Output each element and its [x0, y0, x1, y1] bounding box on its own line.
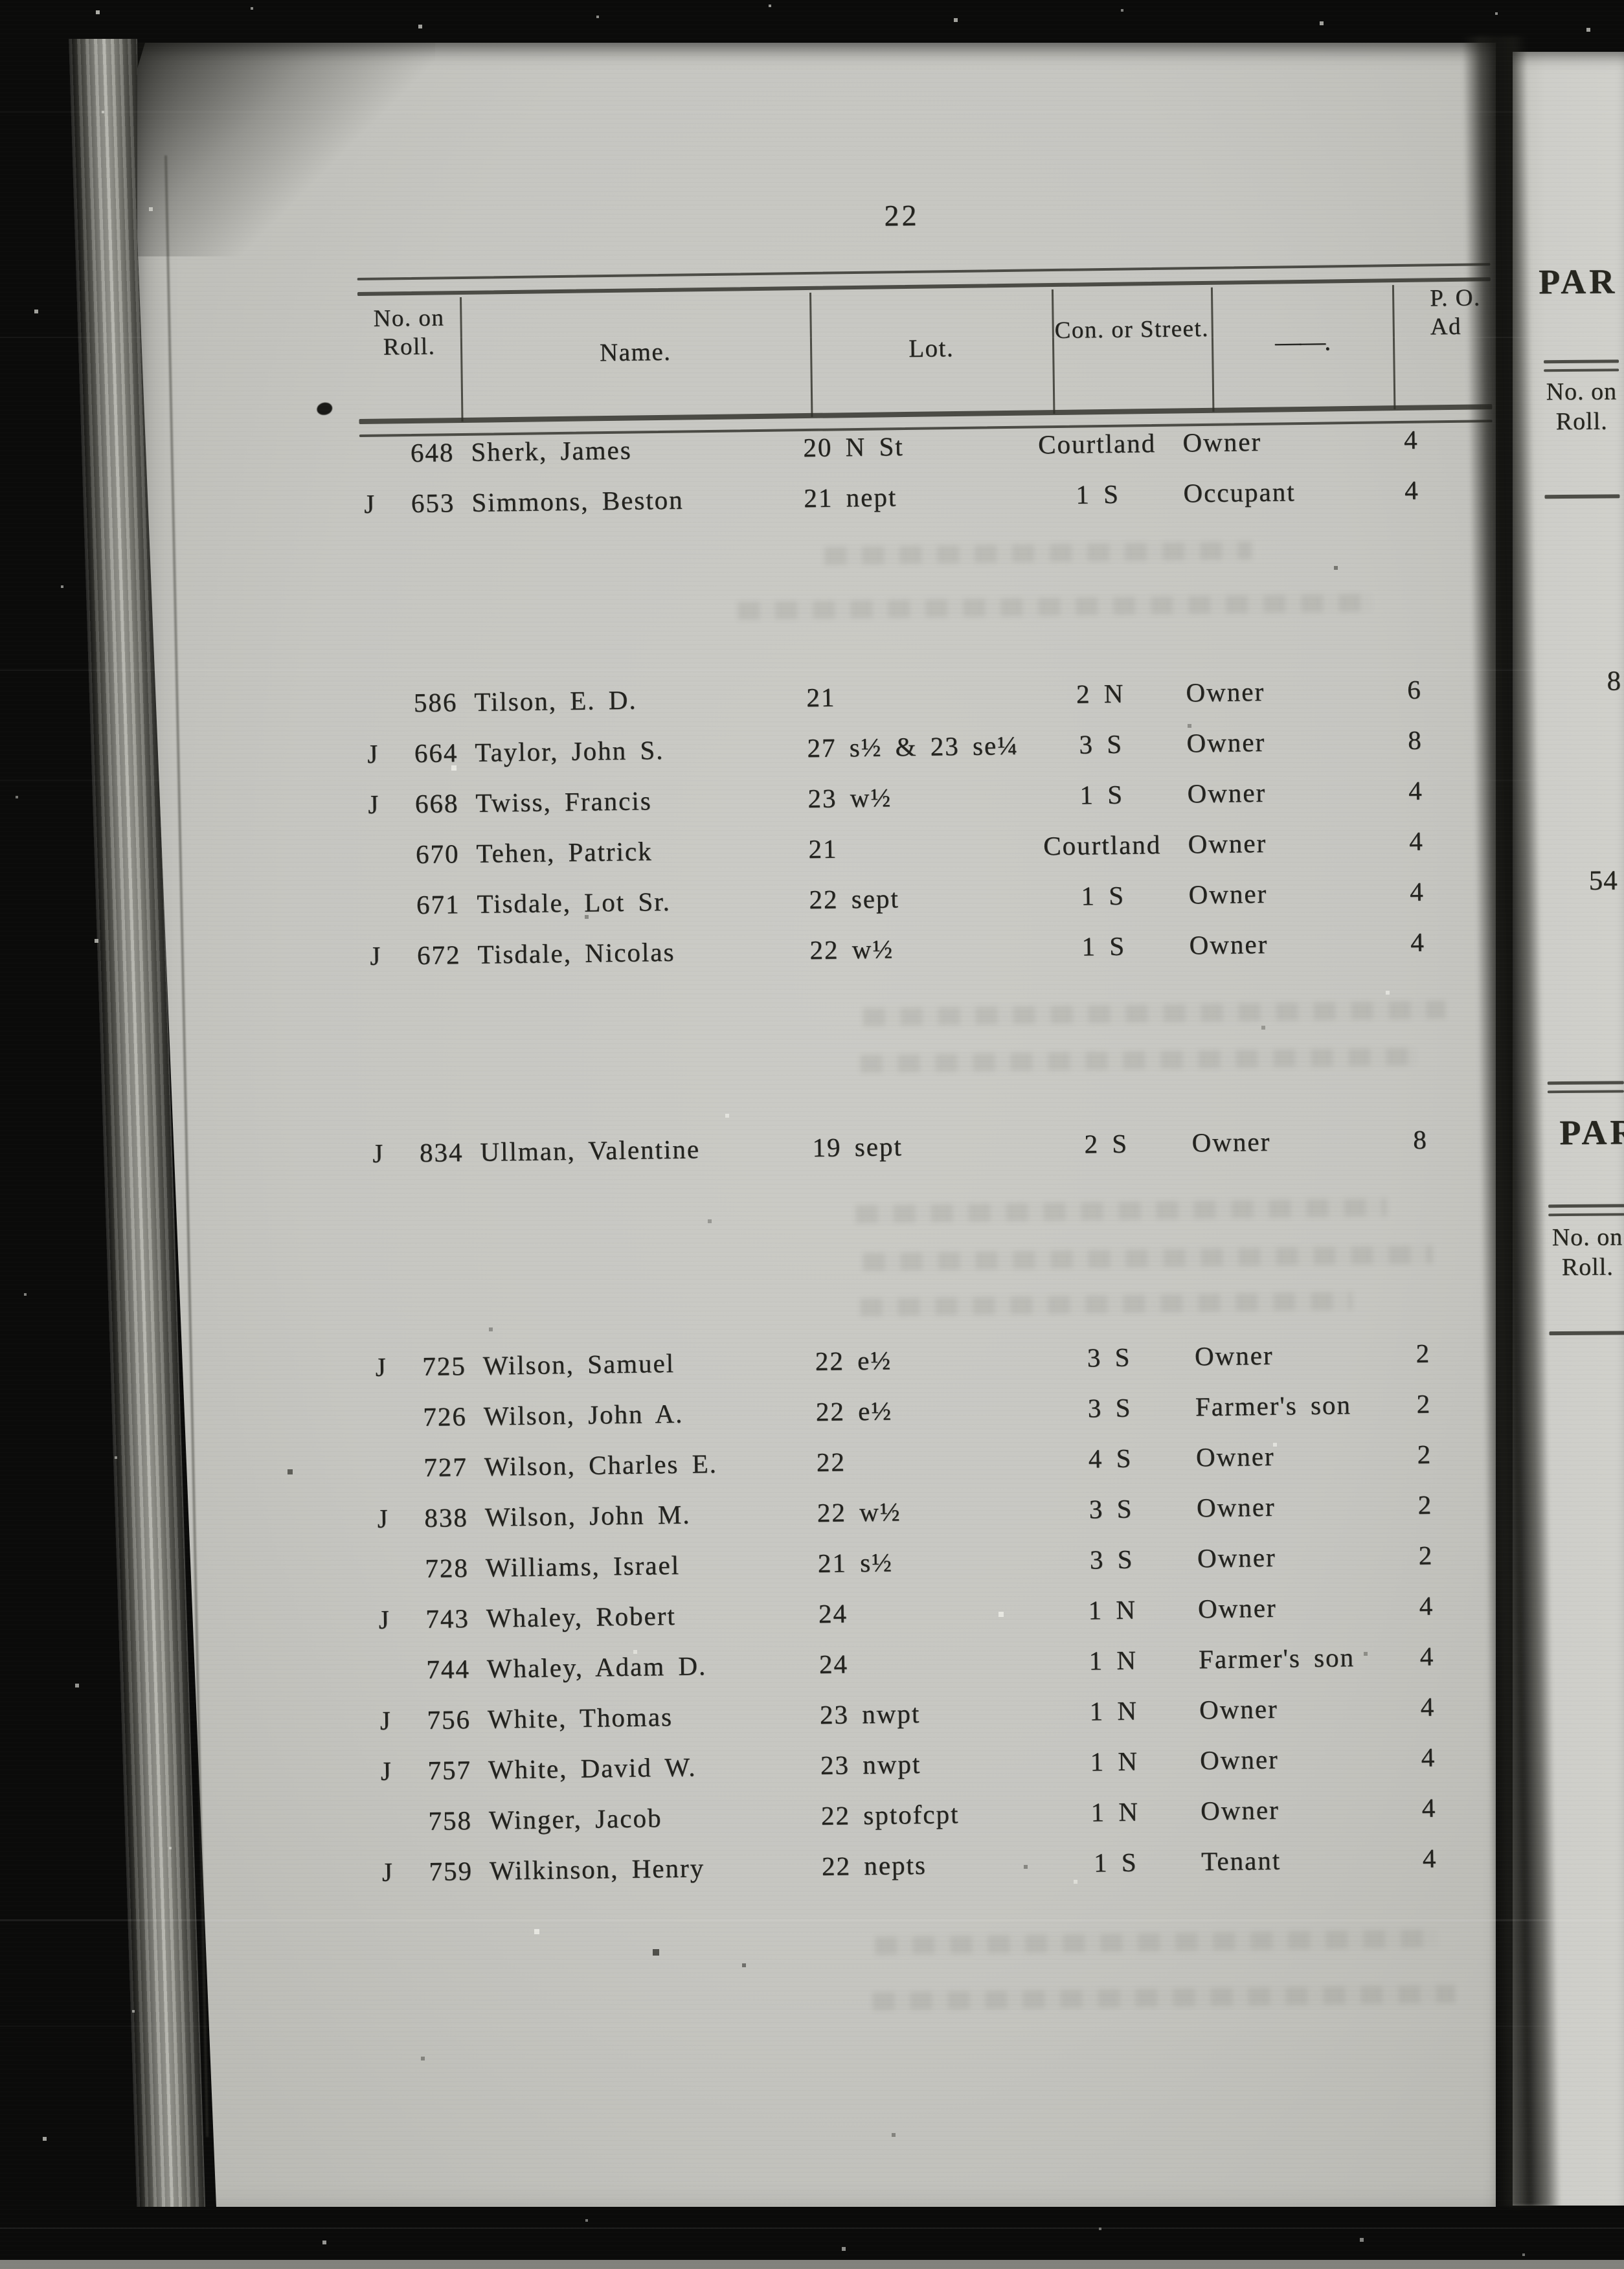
- right-page-heading: PAR: [1539, 261, 1618, 302]
- table-rule: [1548, 1204, 1624, 1208]
- film-scratch: [0, 337, 1624, 338]
- film-scratch: [0, 2026, 1624, 2027]
- scan-edge-strip: [0, 2260, 1624, 2269]
- film-scratch: [0, 670, 1624, 671]
- film-scratch: [0, 111, 1624, 113]
- right-page-heading: PAR: [1559, 1112, 1624, 1153]
- right-header-no-on-roll: No. on Roll.: [1548, 1222, 1624, 1283]
- table-rule: [1544, 368, 1619, 372]
- right-page-content: PAR No. on Roll. 8 54 PAR No. on Roll.: [0, 0, 1624, 2269]
- dust-specks: [0, 0, 1, 1]
- table-rule: [1549, 1331, 1624, 1335]
- table-rule: [1544, 359, 1619, 363]
- table-rule: [1544, 494, 1619, 499]
- film-scratch: [0, 780, 1624, 781]
- film-scratch: [0, 1919, 1624, 1921]
- table-rule: [1548, 1213, 1624, 1216]
- table-rule: [1548, 1081, 1624, 1085]
- table-rule: [1548, 1090, 1624, 1093]
- right-header-no-on-roll: No. on Roll.: [1542, 376, 1621, 437]
- film-scratch: [0, 2228, 1624, 2229]
- scanned-assessment-roll-page: 22 No. on Roll. Name. Lot. Con. or Stree…: [0, 0, 1624, 2269]
- right-page-number: 54: [1588, 864, 1618, 896]
